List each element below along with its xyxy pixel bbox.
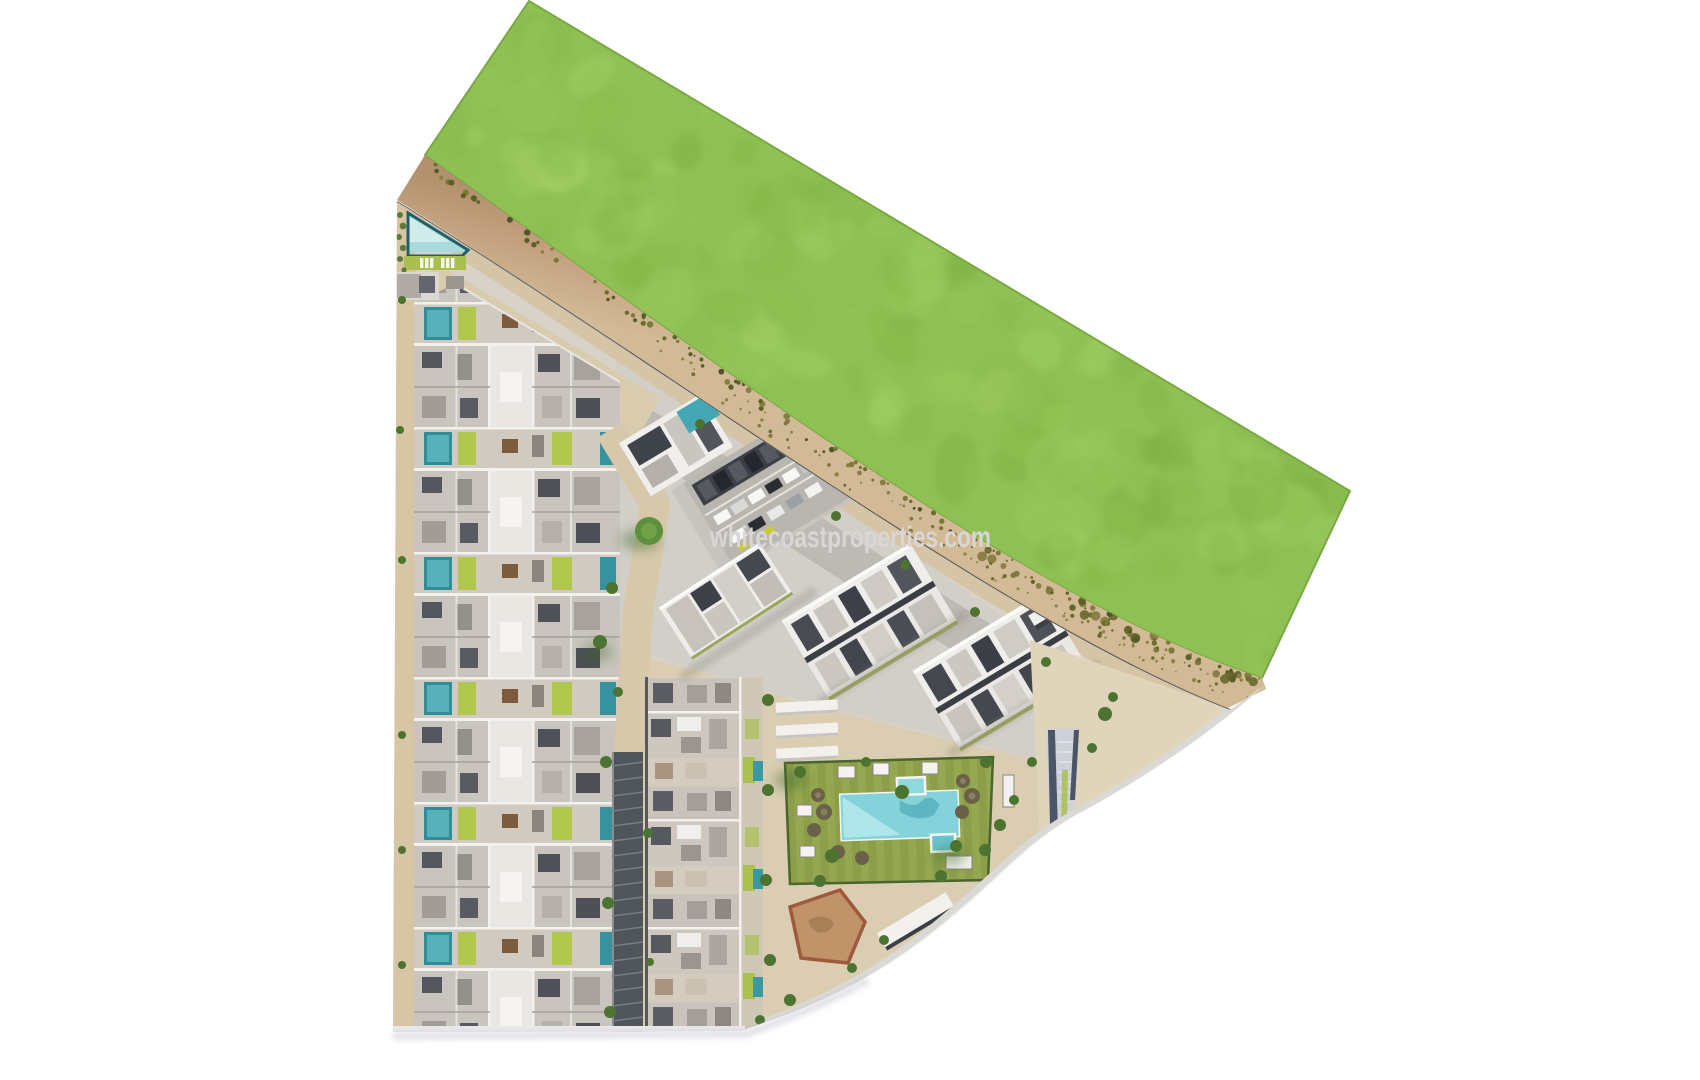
- svg-text:whitecoastproperties.com: whitecoastproperties.com: [709, 521, 991, 554]
